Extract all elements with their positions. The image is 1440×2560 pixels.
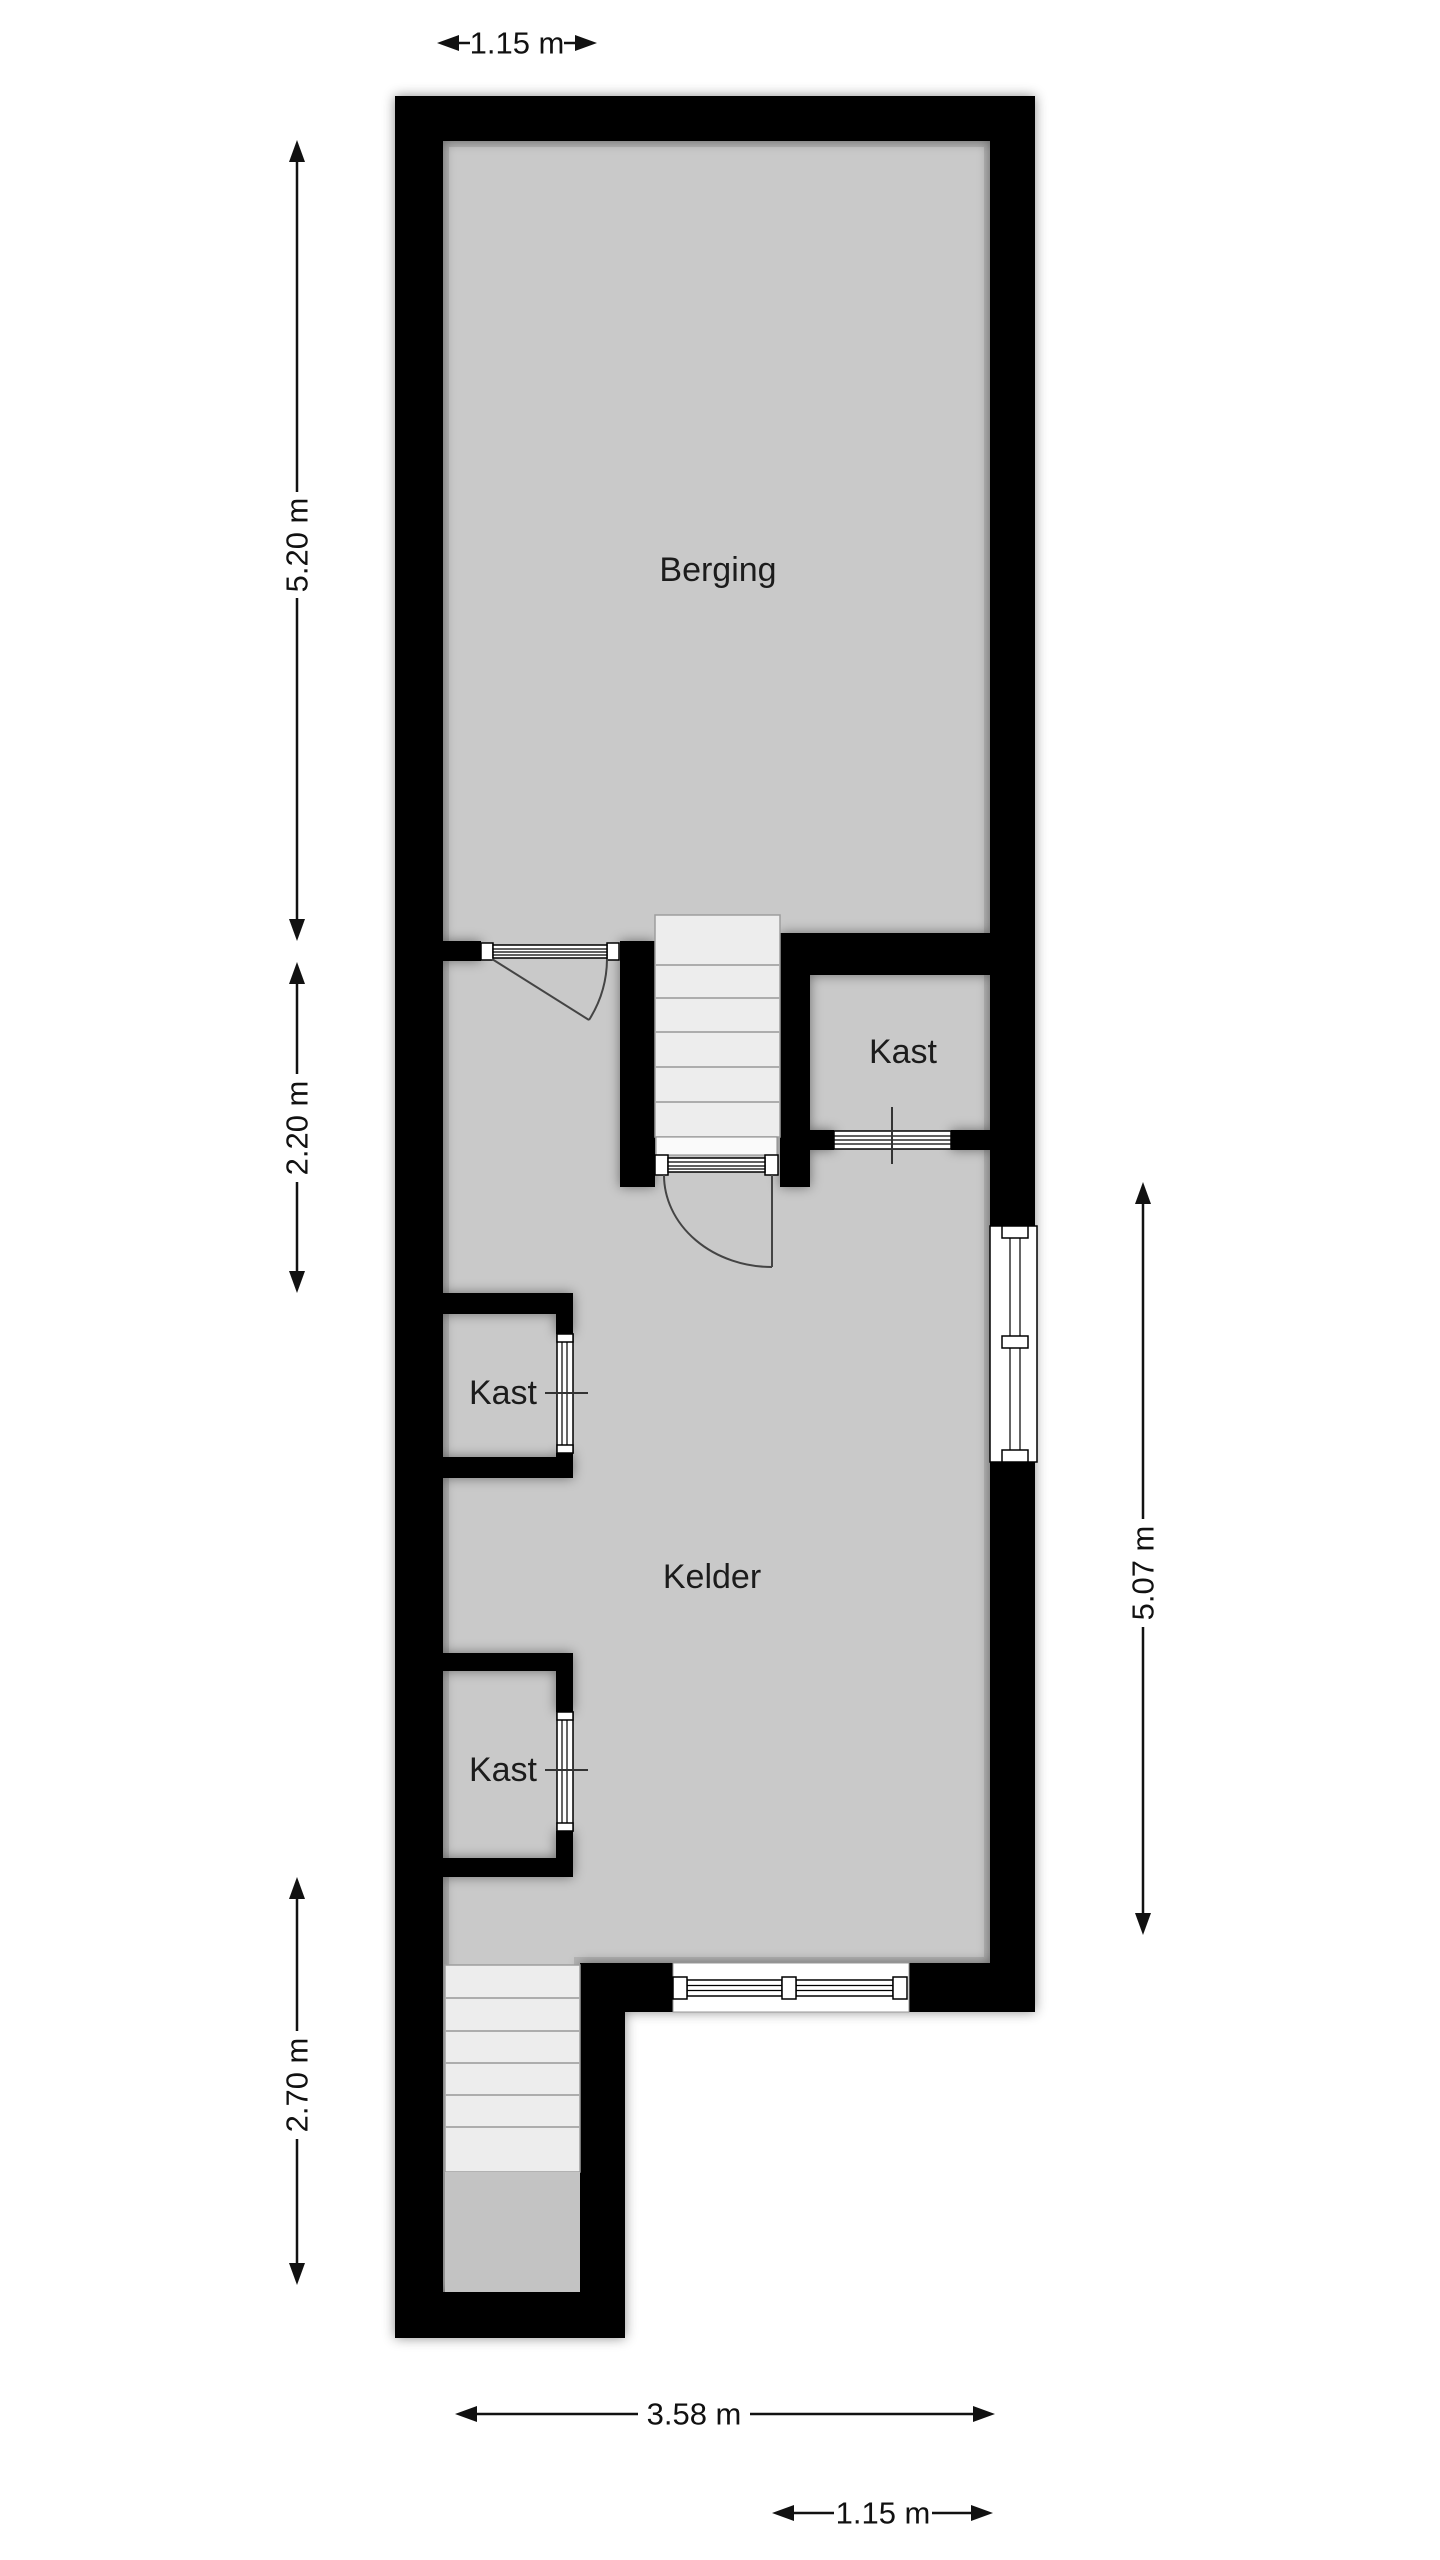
wall-kast2-top <box>443 1653 573 1671</box>
window-bottom <box>673 1963 909 2012</box>
room-label-kelder: Kelder <box>663 1558 761 1596</box>
window-post <box>673 1977 687 1999</box>
dimension-label: 1.15 m <box>470 26 565 61</box>
dimension-label: 3.58 m <box>647 2397 742 2432</box>
dimension-label: 5.20 m <box>280 498 315 593</box>
arrow-right-icon <box>971 2505 993 2521</box>
window-cap <box>1002 1226 1028 1238</box>
wall-stair-left <box>620 941 655 1187</box>
arrow-down-icon <box>289 919 305 941</box>
stair-run <box>655 915 780 1137</box>
door-panel <box>557 1712 573 1831</box>
wall-kast-ur-bottom-right <box>951 1130 990 1150</box>
room-label-kast-upper-right: Kast <box>869 1033 938 1071</box>
arrow-left-icon <box>772 2505 794 2521</box>
arrow-down-icon <box>289 2263 305 2285</box>
floor-plan-page: Berging Kelder Kast Kast Kast 1.15 m 5.2… <box>0 0 1440 2560</box>
dimension-bottom-right-width: 1.15 m <box>772 2496 993 2531</box>
arrow-left-icon <box>455 2406 477 2422</box>
door-jamb <box>481 943 493 960</box>
wall-kast1-right-upper <box>556 1314 573 1334</box>
window-section <box>687 1980 782 1996</box>
room-label-berging: Berging <box>659 551 776 589</box>
arrow-right-icon <box>973 2406 995 2422</box>
door-jamb <box>607 943 619 960</box>
dimension-bottom-width: 3.58 m <box>455 2397 995 2432</box>
arrow-up-icon <box>289 962 305 984</box>
door-panel <box>668 1158 765 1172</box>
wall-berging-kast <box>780 933 990 975</box>
dimension-label: 2.70 m <box>280 2038 315 2133</box>
window-cap <box>1002 1450 1028 1462</box>
arrow-down-icon <box>289 1271 305 1293</box>
arrow-down-icon <box>1135 1913 1151 1935</box>
dimension-label: 2.20 m <box>280 1081 315 1176</box>
door-cap <box>557 1445 573 1453</box>
room-label-kast-left-upper: Kast <box>469 1374 538 1412</box>
door-jamb <box>765 1155 778 1175</box>
staircase-lower <box>445 1965 580 2292</box>
room-label-kast-left-lower: Kast <box>469 1751 538 1789</box>
dimension-left-lower: 2.70 m <box>280 1877 315 2285</box>
wall-kast2-right-upper <box>556 1671 573 1712</box>
wall-kast-ur-bottom-left <box>810 1130 834 1150</box>
wall-kast1-top <box>443 1293 573 1314</box>
window-post <box>782 1977 796 1999</box>
stair-run <box>445 1965 580 2172</box>
dimension-label: 5.07 m <box>1126 1526 1161 1621</box>
wall-stair-right <box>780 975 810 1187</box>
wall-kast2-bottom <box>443 1858 573 1877</box>
door-jamb <box>655 1155 668 1175</box>
arrow-up-icon <box>289 1877 305 1899</box>
dimension-label: 1.15 m <box>836 2496 931 2531</box>
door-cap <box>557 1712 573 1720</box>
arrow-right-icon <box>575 35 597 51</box>
dimension-top-width: 1.15 m <box>437 26 597 61</box>
arrow-left-icon <box>437 35 459 51</box>
window-section <box>796 1980 893 1996</box>
window-right <box>990 1226 1037 1462</box>
door-cap <box>557 1334 573 1342</box>
window-cap <box>1002 1336 1028 1348</box>
dimension-right-height: 5.07 m <box>1126 1182 1161 1935</box>
staircase-upper <box>655 915 780 1155</box>
dimension-left-upper: 5.20 m <box>280 140 315 941</box>
stair-threshold <box>656 1137 777 1155</box>
arrow-up-icon <box>289 140 305 162</box>
dimension-left-middle: 2.20 m <box>280 962 315 1293</box>
door-cap <box>557 1823 573 1831</box>
wall-berging-left-stub <box>443 941 481 961</box>
floor-plan-canvas: Berging Kelder Kast Kast Kast 1.15 m 5.2… <box>0 0 1440 2560</box>
window-post <box>893 1977 907 1999</box>
wall-kast1-bottom <box>443 1457 573 1478</box>
arrow-up-icon <box>1135 1182 1151 1204</box>
stair-landing <box>445 2172 580 2292</box>
